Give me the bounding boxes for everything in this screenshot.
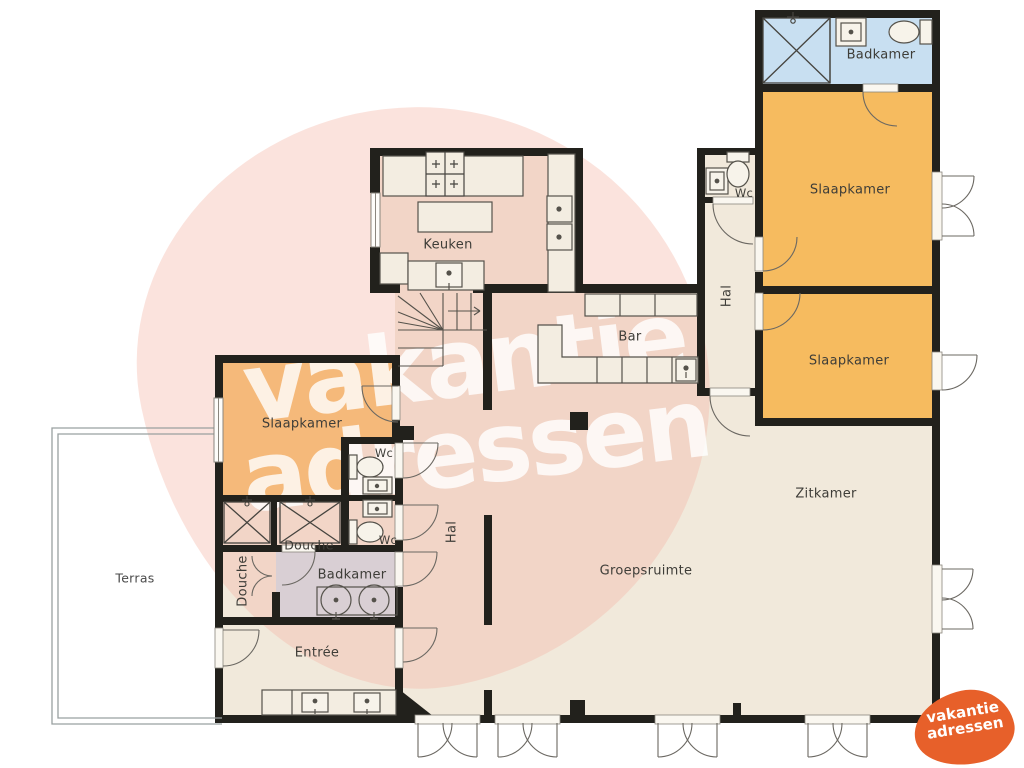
room-label-douche-stall: Douche [284, 538, 333, 553]
sink-icon [436, 263, 462, 290]
sink-icon [706, 168, 728, 194]
sink-icon [836, 18, 866, 46]
room-label-slaapkamer-w: Slaapkamer [262, 417, 342, 432]
room-label-wc-low: Wc [379, 533, 397, 547]
sink-icon [676, 359, 696, 381]
room-label-bar: Bar [618, 330, 641, 345]
wall-corner-brace [400, 690, 433, 716]
vakantieadressen-logo: vakantie adressen [912, 688, 1016, 768]
room-label-terras: Terras [115, 571, 154, 586]
door-frame [215, 84, 942, 724]
room-label-entree: Entrée [295, 646, 339, 661]
shower-head-icon [787, 12, 799, 23]
shower-stall-icon [763, 18, 830, 83]
vanity-sinks [317, 585, 397, 619]
room-label-badkamer-left: Badkamer [318, 568, 387, 583]
shower-head-icon [242, 496, 315, 506]
room-label-slaapkamer-ne: Slaapkamer [810, 183, 890, 198]
room-label-hal-right: Hal [720, 285, 735, 307]
floorplan: vakantie adressen [0, 0, 1024, 768]
sink-icon [363, 477, 392, 517]
room-label-douche-room: Douche [236, 555, 251, 606]
room-label-keuken: Keuken [423, 238, 472, 253]
room-label-wc-top: Wc [735, 186, 753, 200]
room-label-badkamer-top: Badkamer [847, 48, 916, 63]
room-label-slaapkamer-e: Slaapkamer [809, 354, 889, 369]
room-label-zitkamer: Zitkamer [795, 487, 856, 502]
toilet-icon [727, 152, 749, 187]
toilet-icon [889, 20, 932, 44]
room-label-wc-mid: Wc [375, 446, 393, 460]
stairs [398, 293, 487, 366]
entree-counter [262, 690, 396, 715]
stove-icon [426, 152, 464, 196]
room-label-groepsruimte: Groepsruimte [600, 564, 693, 579]
room-label-hal-center: Hal [445, 521, 460, 543]
fixtures-layer [0, 0, 1024, 768]
kitchen-counter [380, 154, 575, 292]
